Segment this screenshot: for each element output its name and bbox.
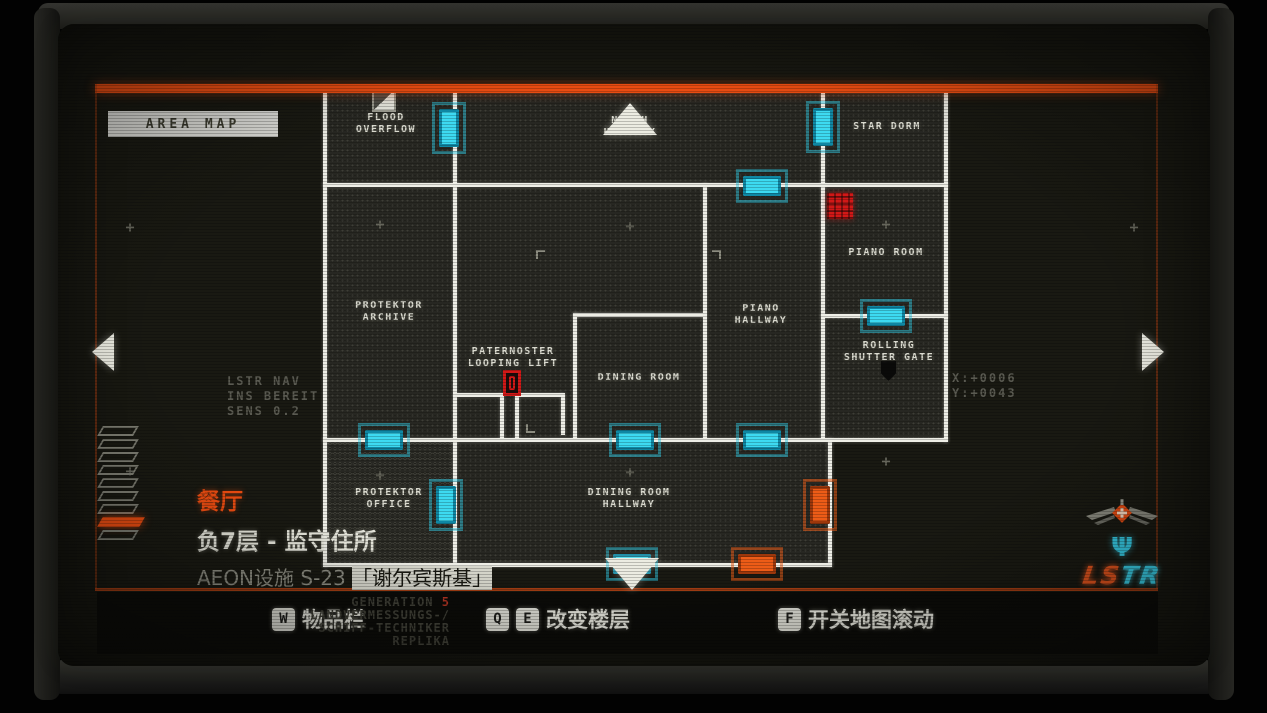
map-coordinates: X:+0006Y:+0043 bbox=[952, 371, 1017, 401]
door-piano-hallway-north bbox=[736, 169, 788, 203]
map-wall bbox=[453, 183, 457, 438]
room-label-piano-hallway: PIANO HALLWAY bbox=[735, 303, 788, 327]
corner-bracket-mark bbox=[712, 250, 721, 259]
door-east-locked bbox=[803, 479, 837, 531]
door-flood-overflow-core bbox=[439, 109, 459, 147]
map-wall bbox=[573, 313, 577, 440]
grid-cross-mark: + bbox=[125, 218, 134, 236]
door-protektor-office-north bbox=[358, 423, 410, 457]
current-floor-name: 负7层 - 监守住所 bbox=[197, 522, 492, 556]
monitor-bezel-right bbox=[1208, 8, 1234, 700]
grid-cross-mark: + bbox=[1129, 218, 1138, 236]
page-arrow-left[interactable] bbox=[92, 333, 114, 371]
generation-number: 5 bbox=[442, 595, 450, 609]
screen: LSTR NAVINS BEREITSENS 0.2 FLOOD OVERFLO… bbox=[58, 24, 1210, 666]
map-wall bbox=[561, 393, 565, 435]
area-map-title: AREA MAP bbox=[108, 111, 278, 137]
room-label-protektor-archive: PROTEKTOR ARCHIVE bbox=[355, 300, 423, 324]
radio-icon bbox=[827, 193, 853, 219]
lstr-letter: R bbox=[1138, 561, 1163, 590]
floor-indicator bbox=[100, 426, 142, 543]
floor-slab bbox=[97, 491, 139, 501]
facility-prefix: AEON设施 S-23 bbox=[197, 566, 352, 590]
map-wall bbox=[455, 393, 502, 397]
wings-emblem-icon bbox=[1080, 498, 1164, 532]
keycap-f[interactable]: F bbox=[778, 608, 801, 631]
crt-monitor: LSTR NAVINS BEREITSENS 0.2 FLOOD OVERFLO… bbox=[0, 0, 1267, 713]
door-south-locked-core bbox=[738, 554, 776, 574]
floor-slab bbox=[97, 478, 139, 488]
floor-slab bbox=[97, 426, 139, 436]
door-piano-hallway-north-core bbox=[743, 176, 781, 196]
floor-slab bbox=[97, 465, 139, 475]
map-wall bbox=[573, 313, 705, 317]
page-arrow-right[interactable] bbox=[1142, 333, 1164, 371]
coordinate-line: X:+0006 bbox=[952, 371, 1017, 386]
room-label-flood-overflow: FLOOD OVERFLOW bbox=[356, 112, 416, 136]
floor-slab-current bbox=[97, 517, 145, 527]
floor-slab bbox=[97, 452, 139, 462]
nav-status-line: SENS 0.2 bbox=[227, 404, 319, 419]
door-rolling-shutter bbox=[860, 299, 912, 333]
map-wall bbox=[944, 93, 948, 442]
coordinate-line: Y:+0043 bbox=[952, 386, 1017, 401]
door-paternoster-lift-core bbox=[509, 376, 515, 390]
door-south-locked bbox=[731, 547, 783, 581]
grid-cross-mark: + bbox=[375, 215, 384, 233]
exit-arrow-up bbox=[603, 103, 657, 135]
room-label-dining-room-hallway: DINING ROOM HALLWAY bbox=[588, 487, 671, 511]
trident-icon: Ψ bbox=[1080, 537, 1164, 559]
facility-name: AEON设施 S-23 「谢尔宾斯基」 bbox=[197, 562, 492, 591]
generation-text: GENERATION bbox=[351, 595, 441, 609]
map-wall bbox=[517, 393, 563, 397]
nav-status-line: LSTR NAV bbox=[227, 374, 319, 389]
door-east-locked-core bbox=[810, 486, 830, 524]
grid-cross-mark: + bbox=[625, 463, 634, 481]
keycap-e[interactable]: E bbox=[516, 608, 539, 631]
nav-status-text: LSTR NAVINS BEREITSENS 0.2 bbox=[227, 374, 319, 419]
current-room-name: 餐厅 bbox=[197, 482, 492, 516]
door-piano-hallway-south bbox=[736, 423, 788, 457]
grid-cross-mark: + bbox=[881, 215, 890, 233]
monitor-bezel-left bbox=[34, 8, 60, 700]
unit-description: GENERATION 5 LANDVERMESSUNGS-/ SCHIFF-TE… bbox=[140, 596, 450, 648]
door-rolling-shutter-core bbox=[867, 306, 905, 326]
grid-cross-mark: + bbox=[881, 452, 890, 470]
nav-status-line: INS BEREIT bbox=[227, 389, 319, 404]
map-wall bbox=[323, 183, 948, 187]
floor-slab bbox=[97, 504, 139, 514]
lstr-logo: Ψ LSTR bbox=[1080, 498, 1164, 590]
map-wall bbox=[515, 393, 519, 441]
area-map-label: AREA MAP bbox=[146, 117, 241, 132]
door-dining-room bbox=[609, 423, 661, 457]
door-star-dorm bbox=[806, 101, 840, 153]
key-hint-2: QE改变楼层 bbox=[486, 604, 630, 634]
door-piano-hallway-south-core bbox=[743, 430, 781, 450]
floor-slab bbox=[97, 530, 139, 540]
location-block: 餐厅 负7层 - 监守住所 AEON设施 S-23 「谢尔宾斯基」 bbox=[197, 482, 492, 591]
room-label-rolling-shutter-gate: ROLLING SHUTTER GATE bbox=[844, 340, 934, 364]
facility-name-highlight: 「谢尔宾斯基」 bbox=[352, 566, 492, 590]
room-rolling-shutter-gate bbox=[821, 316, 946, 438]
frame-top-band bbox=[95, 84, 1158, 93]
lstr-wordmark: LSTR bbox=[1078, 561, 1166, 590]
screen-content: LSTR NAVINS BEREITSENS 0.2 FLOOD OVERFLO… bbox=[58, 24, 1210, 666]
door-protektor-office-north-core bbox=[365, 430, 403, 450]
keycap-q[interactable]: Q bbox=[486, 608, 509, 631]
room-label-star-dorm: STAR DORM bbox=[853, 121, 921, 133]
key-hint-3: F开关地图滚动 bbox=[778, 604, 934, 634]
room-label-paternoster: PATERNOSTER LOOPING LIFT bbox=[468, 346, 558, 370]
map-wall bbox=[703, 183, 707, 440]
door-star-dorm-core bbox=[813, 108, 833, 146]
floor-slab bbox=[97, 439, 139, 449]
key-hint-label: 开关地图滚动 bbox=[808, 604, 934, 634]
grid-cross-mark: + bbox=[625, 217, 634, 235]
key-hint-label: 改变楼层 bbox=[546, 604, 630, 634]
corner-bracket-mark bbox=[536, 250, 545, 259]
exit-arrow-down bbox=[605, 558, 659, 590]
map-wall bbox=[821, 183, 825, 440]
door-flood-overflow bbox=[432, 102, 466, 154]
door-paternoster-lift bbox=[503, 370, 521, 396]
map-wall bbox=[500, 393, 504, 441]
corner-bracket-mark bbox=[526, 424, 535, 433]
room-label-piano-room: PIANO ROOM bbox=[848, 247, 923, 259]
door-dining-room-core bbox=[616, 430, 654, 450]
room-label-dining-room: DINING ROOM bbox=[598, 372, 681, 384]
unit-line4: REPLIKA bbox=[140, 635, 450, 648]
